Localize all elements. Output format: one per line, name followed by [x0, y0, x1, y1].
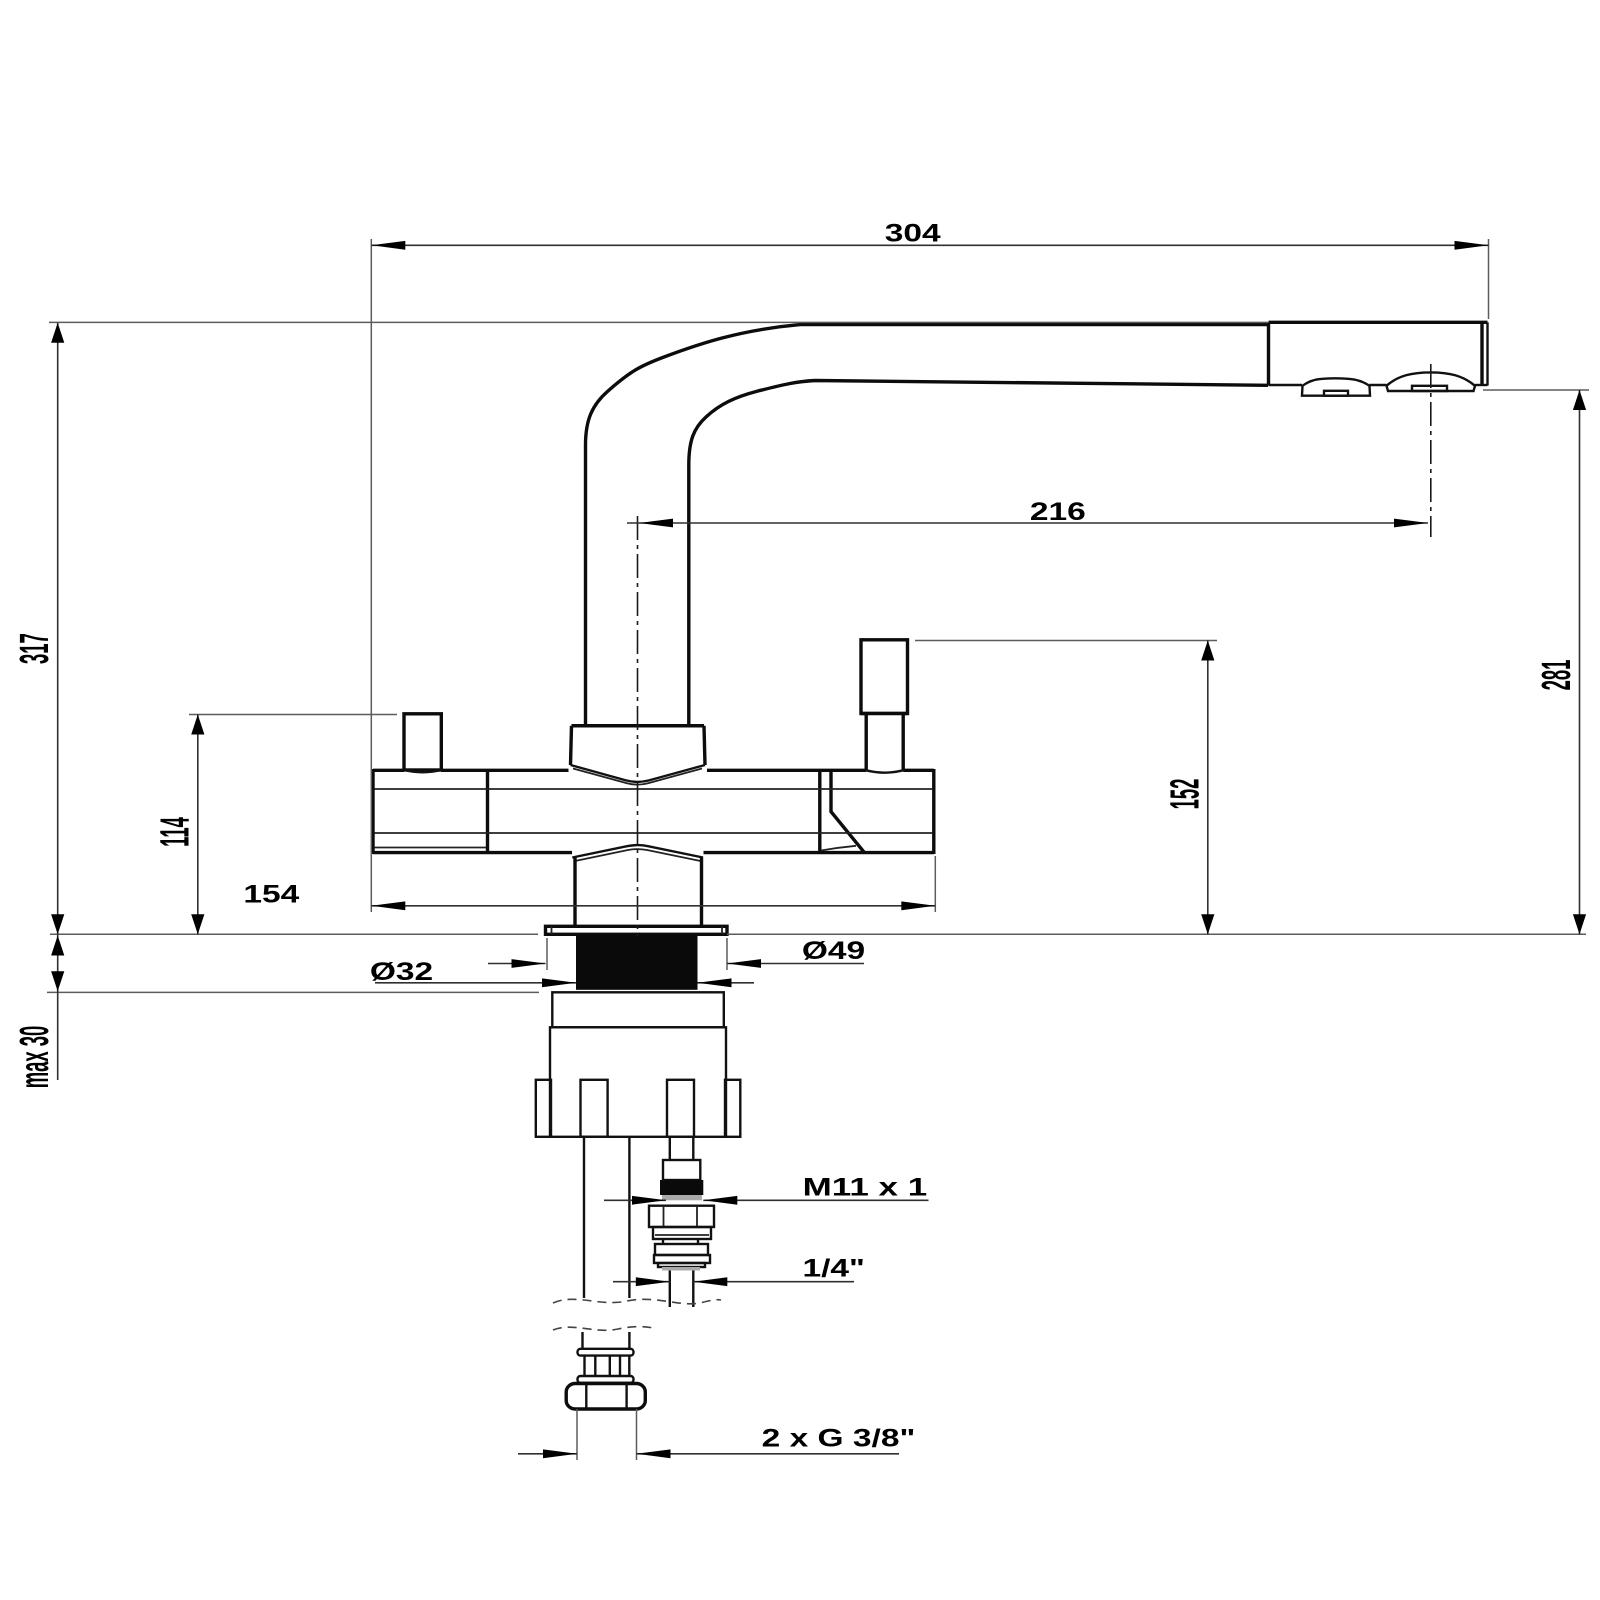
svg-text:317: 317	[11, 633, 57, 664]
svg-text:2 x G 3/8": 2 x G 3/8"	[762, 1425, 916, 1453]
svg-text:281: 281	[1533, 660, 1579, 691]
svg-text:154: 154	[243, 881, 300, 909]
svg-text:152: 152	[1161, 779, 1207, 810]
svg-text:max 30: max 30	[11, 1026, 57, 1089]
svg-text:114: 114	[151, 817, 197, 847]
svg-text:304: 304	[885, 219, 942, 247]
svg-text:216: 216	[1030, 498, 1086, 526]
svg-text:Ø32: Ø32	[370, 958, 433, 986]
svg-text:Ø49: Ø49	[802, 937, 865, 965]
svg-text:1/4": 1/4"	[802, 1254, 864, 1282]
svg-text:M11 x 1: M11 x 1	[803, 1173, 928, 1201]
